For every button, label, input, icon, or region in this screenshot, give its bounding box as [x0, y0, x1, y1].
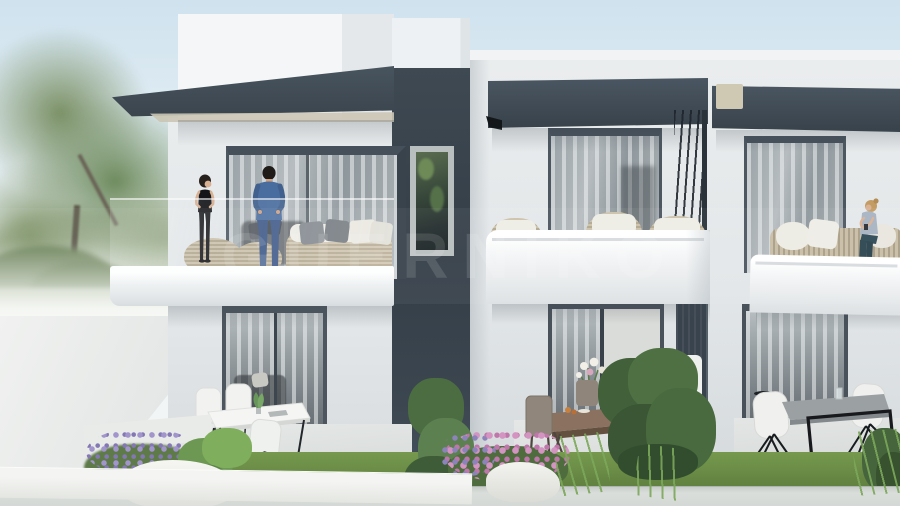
lavender-blooms — [440, 432, 496, 476]
awning-shadow — [716, 130, 900, 152]
watermark-text: GUERNIKO — [0, 214, 900, 298]
ornamental-grass-tuft — [633, 443, 684, 501]
architectural-render-canvas: GUERNIKO — [0, 0, 900, 506]
rear-parapet-wall — [392, 18, 470, 72]
window-greenery-reflection — [418, 158, 434, 180]
ornamental-grass-tuft — [852, 428, 900, 496]
awning-roller-box — [716, 84, 743, 109]
ornamental-grass-tuft — [553, 431, 611, 496]
balcony-shadow — [168, 306, 394, 328]
fern-foliage — [202, 428, 252, 468]
white-planter-wall — [0, 467, 472, 505]
balcony-shadow — [492, 304, 710, 324]
white-landscape-rock — [486, 462, 560, 502]
canopy-shadow — [178, 120, 394, 146]
